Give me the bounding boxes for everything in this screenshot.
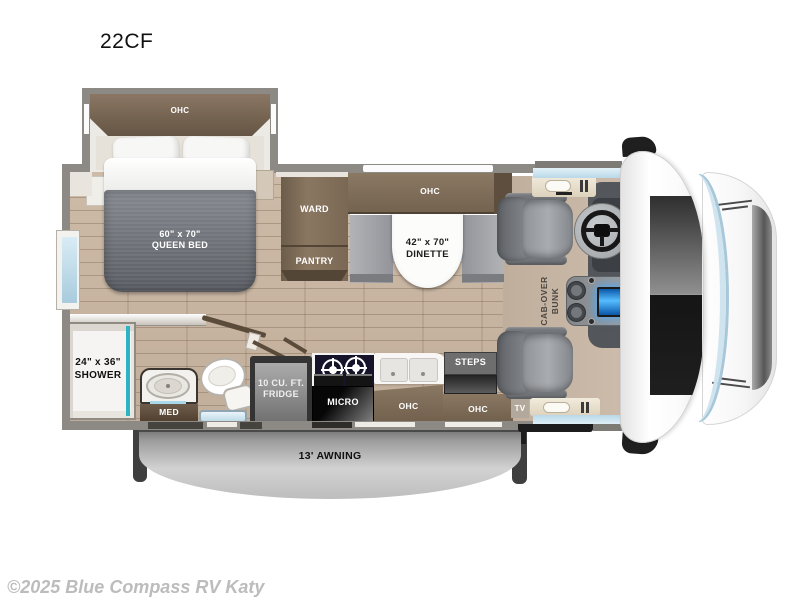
grille [752, 205, 772, 390]
slideout-window-right [271, 104, 276, 134]
console-vent [586, 402, 589, 413]
kitchen-ohc-label: OHC [374, 401, 443, 412]
console-vent [581, 402, 584, 413]
tv-label: TV [511, 404, 529, 414]
bed-sheet [104, 158, 256, 194]
shower-size-text: 24" x 36" [75, 357, 121, 368]
awning [139, 429, 521, 499]
floorplan-title: 22CF [100, 30, 153, 54]
wall-lining [70, 172, 92, 196]
cupholder [568, 304, 585, 321]
passenger-seat [497, 327, 573, 399]
bed-label: 60" x 70" QUEEN BED [104, 229, 256, 252]
cabinet-base-edge [281, 270, 348, 281]
cab-over-bunk-label: CAB-OVER BUNK [539, 271, 563, 331]
dinette-bench-left [350, 213, 393, 283]
visor-edge [556, 192, 572, 195]
console-vent [585, 180, 588, 192]
sink-drain [421, 372, 425, 376]
sink-drain [391, 372, 395, 376]
cupholder [568, 282, 585, 299]
console-vent [580, 180, 583, 192]
sink-basin [409, 358, 438, 382]
fridge-size-text: 10 CU. FT. [258, 378, 304, 388]
sink-drain [166, 384, 170, 388]
storage-bay-door [312, 422, 352, 428]
steering-spoke [609, 228, 619, 232]
entry-ohc-label: OHC [443, 404, 513, 415]
pantry-label: PANTRY [281, 256, 348, 267]
wall-lining [276, 172, 348, 177]
console-latch [545, 180, 571, 192]
bench-shadow [350, 274, 393, 282]
dinette-label: 42" x 70" DINETTE [392, 237, 463, 261]
slideout-window-left [84, 104, 89, 134]
bedroom-window-glass [62, 237, 77, 303]
bunk-line2-text: BUNK [550, 288, 560, 315]
bench-shadow [462, 274, 504, 282]
bed-size-text: 60" x 70" [159, 229, 200, 239]
med-label: MED [140, 407, 198, 418]
awning-label: 13' AWNING [139, 450, 521, 463]
nightstand-right [254, 170, 274, 200]
cab-front [620, 151, 704, 443]
cab-window-top [533, 168, 621, 178]
fridge-name-text: FRIDGE [263, 389, 299, 399]
driver-seat [497, 193, 573, 265]
wall-lining [207, 422, 237, 427]
watermark: ©2025 Blue Compass RV Katy [7, 577, 264, 598]
steering-spoke [600, 236, 604, 246]
bedroom-ohc-label: OHC [90, 106, 270, 116]
entry-door-sill [518, 424, 593, 432]
shower-name-text: SHOWER [75, 370, 122, 381]
dinette-name-text: DINETTE [406, 249, 449, 260]
fridge-label: 10 CU. FT. FRIDGE [250, 378, 312, 401]
sink-basin [380, 358, 408, 382]
dinette-ohc-label: OHC [348, 186, 512, 197]
steps-label: STEPS [444, 357, 497, 368]
console-latch [543, 402, 570, 413]
micro-label: MICRO [312, 397, 374, 408]
windshield-upper [650, 196, 702, 294]
bunk-line1-text: CAB-OVER [539, 276, 549, 325]
console-screw [589, 319, 594, 324]
ward-label: WARD [281, 204, 348, 215]
console-screw [589, 278, 594, 283]
bed-name-text: QUEEN BED [152, 240, 208, 250]
entry-door-edge [521, 430, 526, 444]
dinette-size-text: 42" x 70" [406, 237, 449, 248]
steering-spoke [585, 228, 595, 232]
wall-lining [445, 422, 502, 427]
wardrobe-divider [281, 245, 348, 247]
utility-hatch [240, 422, 262, 429]
dinette-window [363, 165, 493, 172]
entry-steps-lower [444, 375, 497, 394]
windshield-lower [650, 294, 702, 395]
storage-bay-door [148, 422, 203, 429]
wall-lining [355, 422, 415, 427]
shower-label: 24" x 36" SHOWER [66, 357, 130, 382]
cab-sill [593, 424, 622, 431]
rv-floorplan-diagram: 13' AWNING OHC 60" x 70" QUEEN BED WARD … [0, 0, 800, 600]
